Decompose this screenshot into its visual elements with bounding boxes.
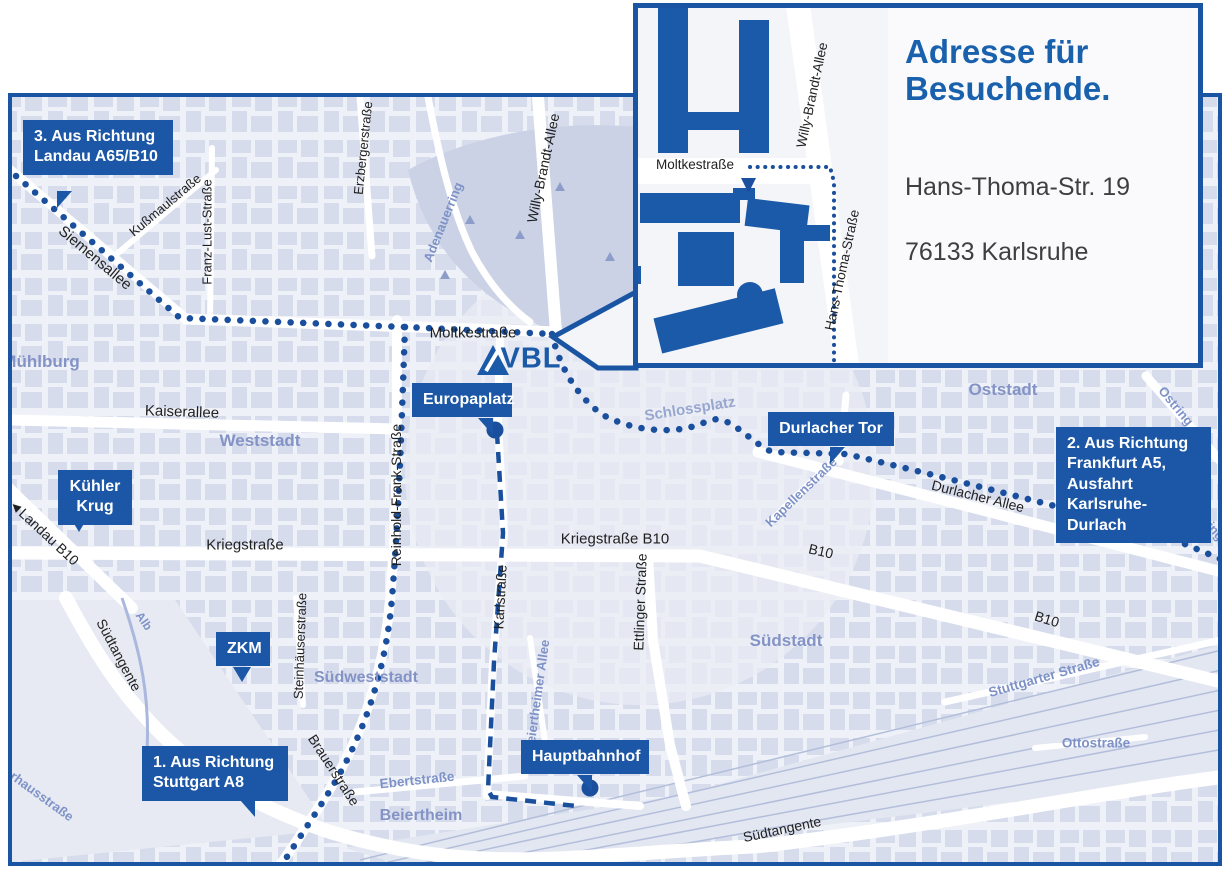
callout-route3-landau: 3. Aus Richtung Landau A65/B10: [23, 120, 173, 175]
callout-hauptbahnhof: Hauptbahnhof: [521, 740, 649, 774]
callout-route2-tail: [1152, 523, 1167, 540]
street-label-adenauerring: Adenauerring: [420, 180, 466, 264]
area-label-muehlburg: Mühlburg: [8, 352, 80, 372]
street-label-brauerstrasse: Brauerstraße: [305, 731, 363, 808]
street-label-durlacher-allee: Durlacher Allee: [930, 477, 1026, 515]
inset-address-line2: 76133 Karlsruhe: [905, 236, 1130, 269]
street-label-franz-lust-strasse: Franz-Lust-Straße: [200, 179, 215, 284]
street-label-b10-east: B10: [807, 540, 835, 561]
street-label-steinhaeuserstrasse: Steinhäuserstraße: [291, 593, 310, 700]
inset-address-line1: Hans-Thoma-Str. 19: [905, 171, 1130, 204]
street-label-beiertheimer-allee: Beiertheimer Allee: [522, 639, 553, 754]
street-label-kriegstrasse: Kriegstraße: [206, 537, 284, 554]
callout-europaplatz-tail: [478, 418, 493, 435]
callout-route2-frankfurt: 2. Aus Richtung Frankfurt A5, Ausfahrt K…: [1056, 427, 1211, 543]
street-label-erzbergerstrasse: Erzbergerstraße: [351, 101, 376, 196]
street-label-willy-brandt-allee: Willy-Brandt-Allee: [524, 112, 563, 224]
route-map-page: Siemensallee Kußmaulstraße Franz-Lust-St…: [0, 0, 1230, 874]
street-label-kussmaulstrasse: Kußmaulstraße: [126, 171, 204, 240]
callout-route3-tail: [57, 191, 72, 208]
street-label-karlstrasse: Karlstraße: [490, 564, 509, 629]
area-label-beiertheim: Beiertheim: [380, 807, 463, 825]
area-label-schlossplatz: Schlossplatz: [643, 393, 736, 424]
area-label-oststadt: Oststadt: [969, 380, 1038, 400]
street-label-kapellenstrasse: Kapellenstraße: [762, 454, 839, 530]
street-label-stuttgarter-strasse: Stuttgarter Straße: [987, 654, 1101, 700]
street-label-ottostrasse: Ottostraße: [1062, 736, 1130, 751]
inset-title: Adresse für Besuchende.: [905, 34, 1110, 108]
street-label-kriegstrasse-b10: Kriegstraße B10: [561, 531, 669, 548]
callout-durlacher-tor: Durlacher Tor: [768, 412, 894, 446]
area-label-weststadt: Weststadt: [220, 431, 301, 451]
callout-zkm-tail: [233, 667, 251, 682]
callout-route1-tail: [240, 800, 255, 817]
street-label-kaiserallee: Kaiserallee: [145, 402, 220, 422]
inset-street-label-moltkestrasse: Moltkestraße: [656, 157, 734, 172]
area-label-suedweststadt: Südweststadt: [314, 669, 418, 687]
inset-address: Hans-Thoma-Str. 19 76133 Karlsruhe: [905, 138, 1130, 301]
callout-hauptbahnhof-tail: [577, 775, 592, 792]
street-label-ettlinger-strasse: Ettlinger Straße: [630, 553, 649, 651]
street-label-siemensallee: Siemensallee: [55, 223, 135, 294]
callout-route1-stuttgart: 1. Aus Richtung Stuttgart A8: [142, 746, 288, 801]
street-label-pulverhausstrasse: Pulverhausstraße: [8, 748, 77, 824]
callout-durlacher-tor-tail: [830, 447, 845, 464]
callout-zkm: ZKM: [216, 632, 270, 666]
callout-kuehler-krug-tail: [70, 517, 88, 532]
street-label-suedtangente-west: Südtangente: [93, 616, 144, 694]
address-inset-panel: Moltkestraße Willy-Brandt-Allee Hans-Tho…: [633, 3, 1203, 368]
street-label-suedtangente-south: Südtangente: [742, 813, 823, 845]
area-label-suedstadt: Südstadt: [750, 631, 823, 651]
street-label-ebertstrasse: Ebertstraße: [379, 769, 455, 792]
street-label-b10-south: B10: [1033, 608, 1062, 631]
street-label-alb: Alb: [133, 609, 156, 633]
callout-europaplatz: Europaplatz: [412, 383, 512, 417]
street-label-reinhold-frank-strasse: Reinhold-Frank-Straße: [388, 424, 404, 566]
street-label-moltkestrasse: Moltkestraße: [430, 325, 517, 342]
street-label-ostring-north: Ostring: [1155, 383, 1196, 428]
